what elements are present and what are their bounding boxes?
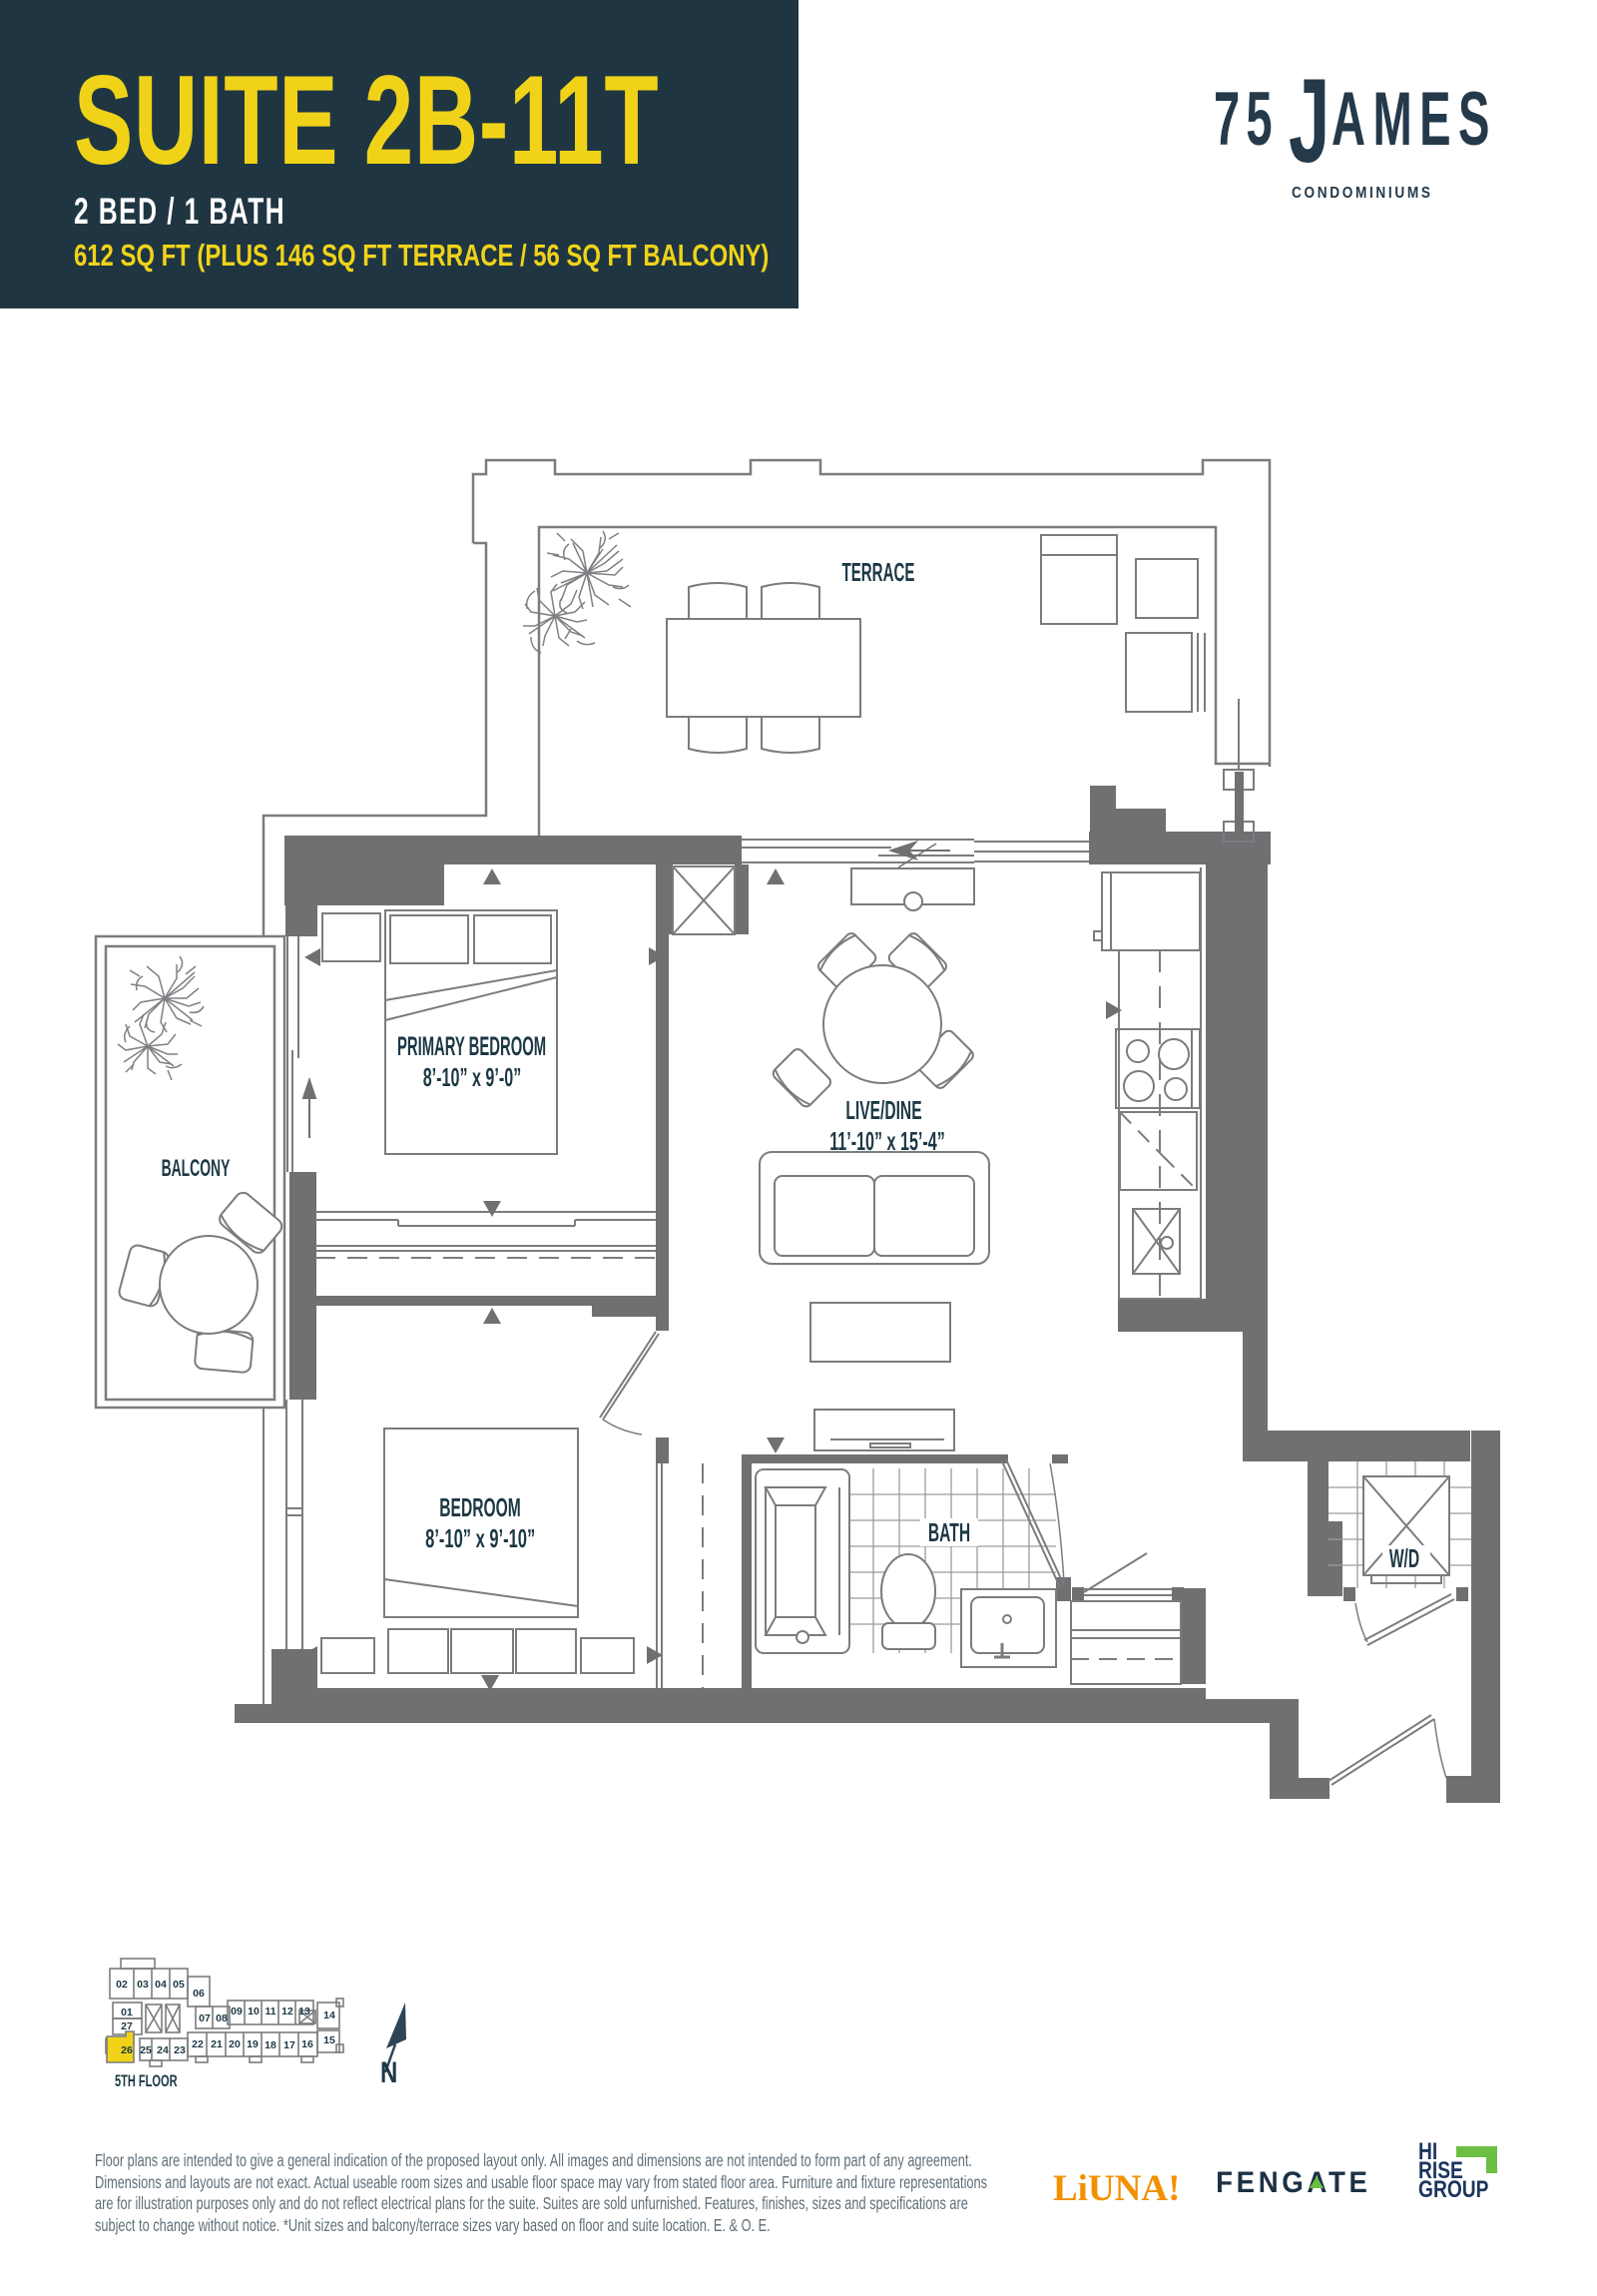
svg-text:11’-10” x 15’-4”: 11’-10” x 15’-4”	[829, 1126, 945, 1156]
svg-text:11: 11	[265, 2006, 275, 2017]
svg-text:8’-10” x 9’-0”: 8’-10” x 9’-0”	[423, 1062, 522, 1092]
svg-text:LiUNA!: LiUNA!	[1053, 2168, 1180, 2209]
svg-text:06: 06	[193, 1988, 205, 2000]
svg-text:08: 08	[216, 2012, 228, 2024]
svg-text:BEDROOM: BEDROOM	[439, 1493, 520, 1522]
svg-text:19: 19	[247, 2038, 259, 2050]
svg-text:20: 20	[229, 2038, 241, 2050]
svg-text:15: 15	[323, 2034, 335, 2046]
svg-text:24: 24	[157, 2044, 169, 2056]
svg-text:26: 26	[121, 2044, 133, 2056]
svg-text:5TH FLOOR: 5TH FLOOR	[115, 2072, 178, 2091]
svg-text:TERRACE: TERRACE	[842, 558, 915, 587]
svg-text:07: 07	[199, 2012, 211, 2024]
svg-text:PRIMARY BEDROOM: PRIMARY BEDROOM	[397, 1030, 546, 1061]
svg-text:16: 16	[301, 2038, 313, 2050]
svg-text:BALCONY: BALCONY	[162, 1155, 231, 1182]
svg-text:17: 17	[283, 2039, 295, 2051]
svg-text:BATH: BATH	[928, 1518, 970, 1547]
svg-text:N: N	[380, 2054, 397, 2088]
svg-text:LIVE/DINE: LIVE/DINE	[845, 1096, 921, 1125]
svg-text:22: 22	[192, 2038, 204, 2050]
svg-text:05: 05	[173, 1979, 185, 1991]
svg-text:02: 02	[116, 1979, 128, 1991]
svg-text:10: 10	[248, 2006, 260, 2017]
svg-text:21: 21	[211, 2038, 223, 2050]
svg-text:04: 04	[155, 1979, 167, 1991]
svg-text:12: 12	[281, 2006, 293, 2017]
svg-text:W/D: W/D	[1389, 1544, 1419, 1573]
svg-text:27: 27	[121, 2020, 133, 2032]
svg-text:09: 09	[231, 2006, 243, 2017]
svg-text:25: 25	[140, 2044, 152, 2056]
svg-text:13: 13	[298, 2006, 310, 2017]
svg-text:01: 01	[121, 2007, 133, 2018]
svg-text:GROUP: GROUP	[1418, 2175, 1488, 2203]
svg-text:18: 18	[265, 2039, 276, 2051]
svg-text:03: 03	[137, 1979, 149, 1991]
svg-text:14: 14	[323, 2009, 335, 2021]
svg-text:23: 23	[174, 2044, 186, 2056]
svg-text:8’-10” x 9’-10”: 8’-10” x 9’-10”	[425, 1523, 535, 1553]
svg-text:FENGATE: FENGATE	[1216, 2166, 1371, 2199]
